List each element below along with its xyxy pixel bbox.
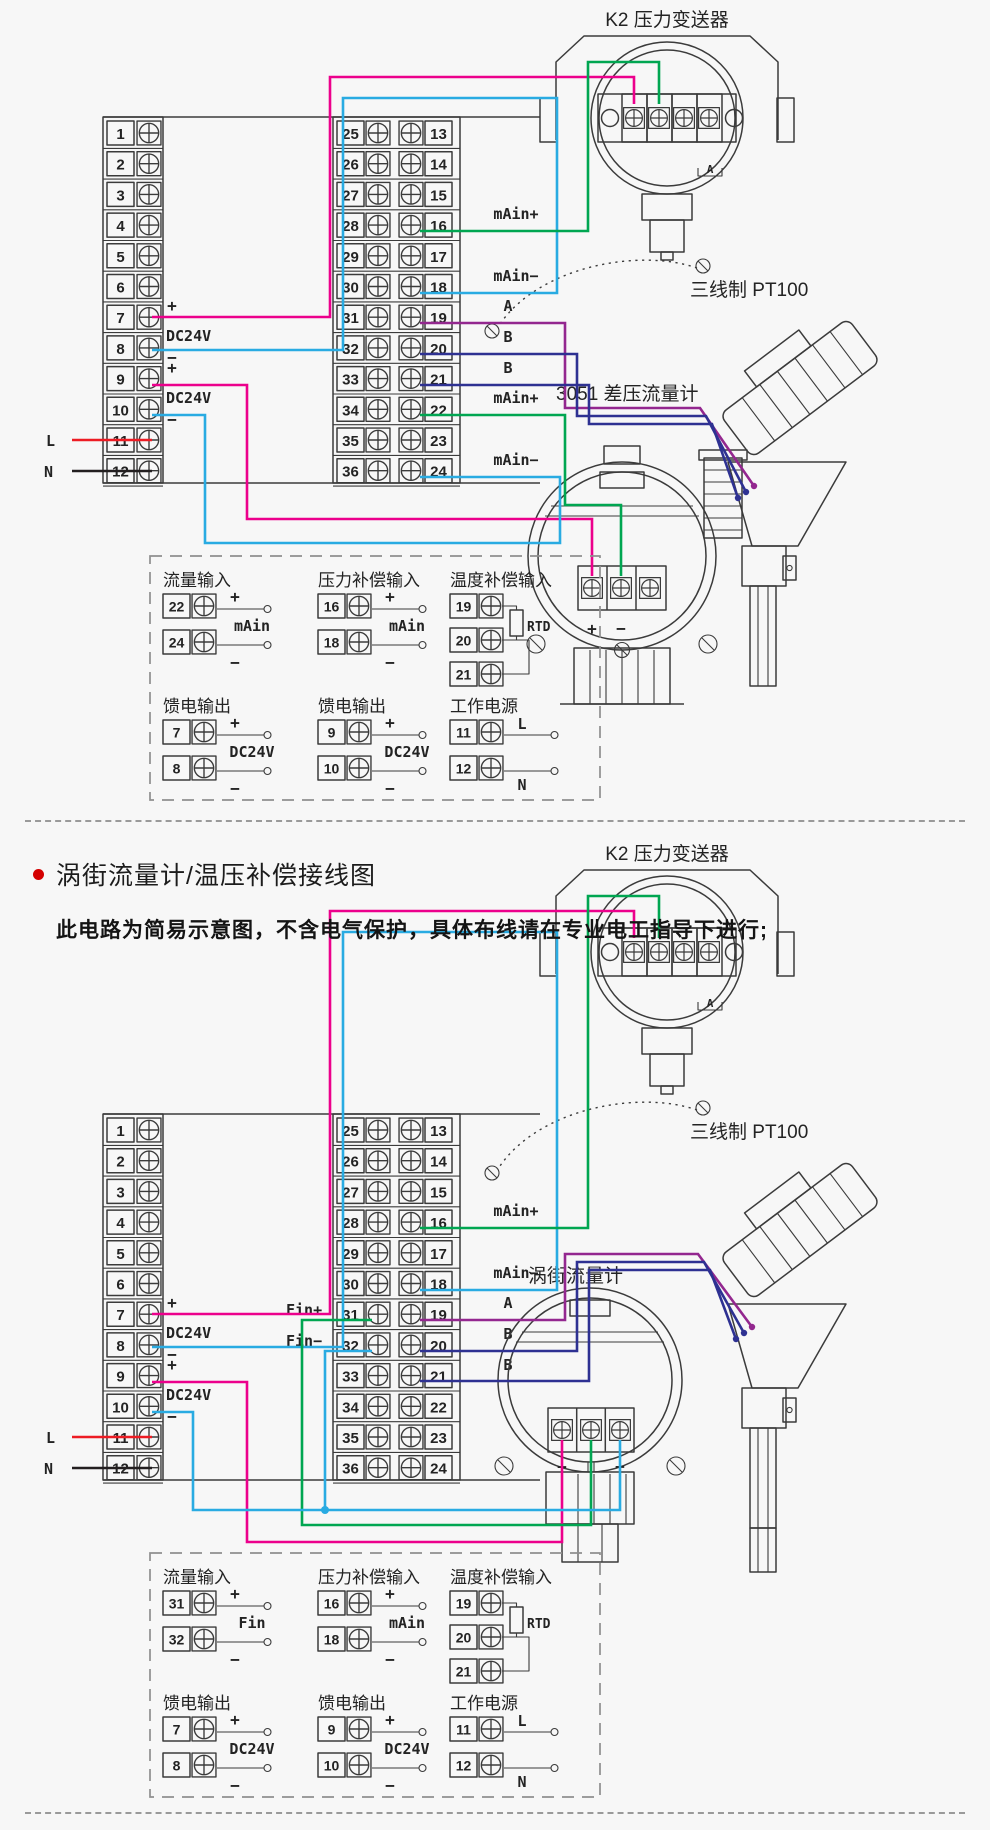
svg-text:30: 30 xyxy=(342,1277,359,1294)
svg-text:−: − xyxy=(167,1407,177,1426)
legend-press-title: 压力补偿输入 xyxy=(318,1568,420,1587)
terminal-row: 2 xyxy=(103,152,163,179)
wires-1 xyxy=(72,62,757,576)
flowmeter-label: 涡街流量计 xyxy=(528,1265,623,1287)
svg-text:25: 25 xyxy=(342,126,359,143)
line-N-label: N xyxy=(44,1460,53,1478)
dc24v1-label: DC24V xyxy=(166,327,211,345)
svg-text:7: 7 xyxy=(116,310,124,327)
pt100-wire-dot xyxy=(743,489,749,495)
svg-text:DC24V: DC24V xyxy=(229,1740,274,1758)
svg-text:+: + xyxy=(385,1584,395,1603)
terminal-row: 18 xyxy=(425,275,452,299)
k2-transmitter-1: K2 压力变送器 A xyxy=(540,9,794,260)
svg-text:+: + xyxy=(385,587,395,606)
svg-text:8: 8 xyxy=(116,1338,124,1355)
k2-transmitter-2: K2 压力变送器 A xyxy=(540,843,794,1094)
label-mAin-minus-18: mAin− xyxy=(493,267,538,285)
svg-text:13: 13 xyxy=(430,126,447,143)
dc24v1-plus: + xyxy=(167,296,177,315)
terminal-row: 15 xyxy=(425,1179,452,1203)
svg-text:33: 33 xyxy=(342,372,359,389)
pt100-label: 三线制 PT100 xyxy=(690,1121,808,1143)
terminal-row: 14 xyxy=(425,152,452,176)
svg-text:26: 26 xyxy=(342,1154,359,1171)
svg-text:+: + xyxy=(230,587,240,606)
svg-text:8: 8 xyxy=(173,1758,181,1774)
svg-text:+: + xyxy=(385,713,395,732)
dc24v2-label: DC24V xyxy=(166,389,211,407)
legend-temp-title: 温度补偿输入 xyxy=(450,571,552,590)
svg-text:30: 30 xyxy=(342,280,359,297)
svg-text:1: 1 xyxy=(116,126,124,143)
svg-text:3: 3 xyxy=(116,187,124,204)
k2-label: K2 压力变送器 xyxy=(605,9,729,31)
terminal-row: 21 xyxy=(425,367,452,391)
svg-text:mAin: mAin xyxy=(389,617,425,635)
svg-text:34: 34 xyxy=(342,1399,359,1416)
rtd-resistor xyxy=(510,610,523,636)
terminal-row: 13 xyxy=(425,1118,452,1142)
label-A-19: A xyxy=(503,297,512,315)
wire-16-to-k2-minus xyxy=(420,62,659,231)
svg-text:20: 20 xyxy=(430,341,447,358)
svg-text:3: 3 xyxy=(116,1184,124,1201)
svg-text:18: 18 xyxy=(324,635,340,651)
label-Fin-plus-31: Fin+ xyxy=(286,1301,322,1319)
svg-text:9: 9 xyxy=(328,1722,336,1738)
svg-text:20: 20 xyxy=(456,633,472,649)
terminal-row: 2 xyxy=(103,1149,163,1176)
svg-text:−: − xyxy=(385,1776,395,1795)
svg-text:A: A xyxy=(707,997,714,1010)
pt100-wire-dot xyxy=(751,483,757,489)
svg-text:8: 8 xyxy=(173,761,181,777)
left-terminal-block-1: 1 2 3 4 5 xyxy=(103,121,163,486)
pt100-probe-2: 三线制 PT100 xyxy=(485,1101,880,1572)
terminal-row: 1 xyxy=(103,1118,163,1145)
svg-text:7: 7 xyxy=(173,725,181,741)
rear-panel-1: 1 2 3 4 5 xyxy=(44,117,540,486)
svg-text:32: 32 xyxy=(342,1338,359,1355)
legend-flow-title: 流量输入 xyxy=(163,1568,231,1587)
svg-text:−: − xyxy=(385,1650,395,1669)
svg-text:11: 11 xyxy=(456,1722,471,1738)
terminal-row: 6 xyxy=(103,275,163,302)
svg-text:9: 9 xyxy=(116,372,124,389)
svg-text:1: 1 xyxy=(116,1123,124,1140)
svg-text:N: N xyxy=(517,1773,526,1791)
terminal-row: 19 xyxy=(425,305,452,329)
svg-text:29: 29 xyxy=(342,249,359,266)
section-title: 涡街流量计/温压补偿接线图 xyxy=(56,856,376,892)
svg-text:11: 11 xyxy=(456,725,471,741)
wires-2 xyxy=(72,896,755,1542)
rtd-label: RTD xyxy=(527,620,551,635)
svg-text:8: 8 xyxy=(116,341,124,358)
svg-text:L: L xyxy=(517,1712,526,1730)
label-mAin-plus-16: mAin+ xyxy=(493,205,538,223)
svg-text:25: 25 xyxy=(342,1123,359,1140)
line-L-label: L xyxy=(46,432,55,450)
wire-9-to-meter-plus xyxy=(152,385,592,576)
terminal-row: 3 xyxy=(103,1179,163,1206)
svg-text:17: 17 xyxy=(430,249,447,266)
label-mAin-plus-16: mAin+ xyxy=(493,1202,538,1220)
legend-feed1-title: 馈电输出 xyxy=(163,697,231,716)
label-B-21: B xyxy=(503,359,512,377)
svg-text:−: − xyxy=(230,1776,240,1795)
terminal-row: 21 xyxy=(425,1364,452,1388)
legend-feed1-title: 馈电输出 xyxy=(163,1694,231,1713)
terminal-row: 11 xyxy=(103,1425,163,1452)
svg-text:16: 16 xyxy=(324,1596,340,1612)
svg-text:12: 12 xyxy=(456,761,472,777)
svg-text:2: 2 xyxy=(116,1154,124,1171)
legend-temp-terminals: 19 20 21 xyxy=(450,594,503,686)
svg-text:+: + xyxy=(230,713,240,732)
svg-text:33: 33 xyxy=(342,1369,359,1386)
svg-text:2: 2 xyxy=(116,157,124,174)
rear-panel-2: 1 2 3 4 5 xyxy=(44,1114,540,1483)
label-A-19: A xyxy=(503,1294,512,1312)
svg-text:22: 22 xyxy=(430,1399,447,1416)
svg-text:mAin: mAin xyxy=(389,1614,425,1632)
terminal-row: 9 xyxy=(103,367,163,394)
svg-text:14: 14 xyxy=(430,1154,447,1171)
legend-press-title: 压力补偿输入 xyxy=(318,571,420,590)
svg-text:16: 16 xyxy=(324,599,340,615)
svg-text:12: 12 xyxy=(456,1758,472,1774)
svg-text:+: + xyxy=(167,1293,177,1312)
terminal-row: 16 xyxy=(425,1210,452,1234)
svg-text:23: 23 xyxy=(430,433,447,450)
terminal-row: 6 xyxy=(103,1272,163,1299)
k2-bracket-letter: A xyxy=(707,163,714,176)
dc24v2-plus: + xyxy=(167,358,177,377)
terminal-row: 12 xyxy=(103,1456,163,1483)
terminal-row: 5 xyxy=(103,1241,163,1268)
svg-text:6: 6 xyxy=(116,280,124,297)
svg-text:6: 6 xyxy=(116,1277,124,1294)
svg-text:19: 19 xyxy=(456,599,472,615)
label-B-20: B xyxy=(503,328,512,346)
svg-text:15: 15 xyxy=(430,1184,447,1201)
pt100-wire-dot xyxy=(735,495,741,501)
line-N-label: N xyxy=(44,463,53,481)
svg-text:11: 11 xyxy=(113,1430,129,1447)
svg-text:DC24V: DC24V xyxy=(166,1386,211,1404)
svg-text:19: 19 xyxy=(456,1596,472,1612)
svg-text:−: − xyxy=(385,653,395,672)
terminal-row: 7 xyxy=(103,1302,163,1329)
svg-text:16: 16 xyxy=(430,218,447,235)
label-mAin-minus-24: mAin− xyxy=(493,451,538,469)
k2-label: K2 压力变送器 xyxy=(605,843,729,865)
svg-text:20: 20 xyxy=(430,1338,447,1355)
svg-text:13: 13 xyxy=(430,1123,447,1140)
terminal-row: 10 xyxy=(103,397,163,424)
rtd-label: RTD xyxy=(527,1617,551,1632)
svg-text:22: 22 xyxy=(430,402,447,419)
terminal-row: 1 xyxy=(103,121,163,148)
terminal-row: 19 xyxy=(425,1302,452,1326)
wiring-diagram-vortex: 1 2 3 4 5 xyxy=(0,830,990,1830)
terminal-row: 15 xyxy=(425,182,452,206)
svg-text:21: 21 xyxy=(430,1369,447,1386)
svg-text:18: 18 xyxy=(324,1632,340,1648)
terminal-row: 9 xyxy=(103,1364,163,1391)
svg-text:mAin: mAin xyxy=(234,617,270,635)
wire-7-to-k2-plus xyxy=(152,911,634,1314)
legend-flow-title: 流量输入 xyxy=(163,571,231,590)
legend-power-title: 工作电源 xyxy=(450,697,518,716)
svg-text:DC24V: DC24V xyxy=(384,1740,429,1758)
svg-text:32: 32 xyxy=(169,1632,185,1648)
svg-text:10: 10 xyxy=(324,1758,340,1774)
svg-text:14: 14 xyxy=(430,157,447,174)
terminal-row: 7 xyxy=(103,305,163,332)
pt100-wire-dot xyxy=(749,1324,755,1330)
svg-text:10: 10 xyxy=(112,1399,129,1416)
svg-text:7: 7 xyxy=(116,1307,124,1324)
svg-text:27: 27 xyxy=(342,187,359,204)
svg-text:+: + xyxy=(167,1355,177,1374)
terminal-row: 20 xyxy=(425,1333,452,1357)
svg-text:21: 21 xyxy=(456,1664,472,1680)
svg-text:11: 11 xyxy=(113,433,129,450)
terminal-row: 14 xyxy=(425,1149,452,1173)
section-subtitle: 此电路为简易示意图，不含电气保护，具体布线请在专业电工指导下进行; xyxy=(56,914,768,944)
svg-text:10: 10 xyxy=(324,761,340,777)
svg-text:32: 32 xyxy=(342,341,359,358)
legend-box-2: 流量输入 31 32 + Fin − 压力补偿输入 16 xyxy=(150,1553,600,1797)
section-divider xyxy=(25,820,965,822)
svg-text:9: 9 xyxy=(328,725,336,741)
terminal-row: 16 xyxy=(425,213,452,237)
svg-text:15: 15 xyxy=(430,187,447,204)
svg-text:28: 28 xyxy=(342,218,359,235)
svg-text:19: 19 xyxy=(430,1307,447,1324)
svg-text:4: 4 xyxy=(116,1215,125,1232)
svg-text:31: 31 xyxy=(342,310,359,327)
bullet-icon xyxy=(33,869,44,880)
wiring-manual-page: { "page": { "bg": "#f7f7f7" }, "colors":… xyxy=(0,0,990,1830)
svg-text:31: 31 xyxy=(169,1596,185,1612)
terminal-row: 24 xyxy=(425,459,452,483)
svg-text:21: 21 xyxy=(456,667,472,683)
terminal-row: 24 xyxy=(425,1456,452,1480)
terminal-row: 17 xyxy=(425,244,452,268)
svg-text:35: 35 xyxy=(342,433,359,450)
svg-text:10: 10 xyxy=(112,402,129,419)
wire-10-to-meter-minus xyxy=(152,1412,620,1510)
terminal-row: 3 xyxy=(103,182,163,209)
legend-feed2-title: 馈电输出 xyxy=(318,697,386,716)
pt100-wire-dot xyxy=(733,1336,739,1342)
flowmeter-minus: − xyxy=(616,619,626,638)
page-bottom-divider xyxy=(25,1812,965,1814)
svg-text:−: − xyxy=(385,779,395,798)
terminal-row: 13 xyxy=(425,121,452,145)
flowmeter-plus: + xyxy=(587,619,597,638)
wiring-diagram-3051: 1 2 3 4 5 xyxy=(0,0,990,822)
svg-text:+: + xyxy=(230,1710,240,1729)
svg-text:34: 34 xyxy=(342,402,359,419)
terminal-row: 18 xyxy=(425,1272,452,1296)
svg-text:17: 17 xyxy=(430,1246,447,1263)
svg-text:−: − xyxy=(230,1650,240,1669)
svg-text:20: 20 xyxy=(456,1630,472,1646)
svg-text:19: 19 xyxy=(430,310,447,327)
terminal-row: 22 xyxy=(425,1394,452,1418)
terminal-row: 17 xyxy=(425,1241,452,1265)
svg-text:29: 29 xyxy=(342,1246,359,1263)
rtd-resistor xyxy=(510,1607,523,1633)
svg-text:N: N xyxy=(517,776,526,794)
left-terminal-block-2: 1 2 3 4 5 xyxy=(103,1118,163,1483)
pt100-label: 三线制 PT100 xyxy=(690,279,808,301)
svg-text:5: 5 xyxy=(116,249,124,266)
svg-text:DC24V: DC24V xyxy=(384,743,429,761)
svg-text:+: + xyxy=(385,1710,395,1729)
svg-text:26: 26 xyxy=(342,157,359,174)
terminal-row: 20 xyxy=(425,336,452,360)
terminal-row: 5 xyxy=(103,244,163,271)
svg-text:L: L xyxy=(517,715,526,733)
svg-text:DC24V: DC24V xyxy=(166,1324,211,1342)
pt100-wire-dot xyxy=(741,1330,747,1336)
svg-text:−: − xyxy=(230,779,240,798)
legend-power-title: 工作电源 xyxy=(450,1694,518,1713)
svg-text:+: + xyxy=(230,1584,240,1603)
legend-feed2-title: 馈电输出 xyxy=(318,1694,386,1713)
wire-7-to-k2-plus xyxy=(152,77,634,317)
terminal-row: 23 xyxy=(425,1425,452,1449)
svg-text:31: 31 xyxy=(342,1307,359,1324)
svg-text:36: 36 xyxy=(342,1461,359,1478)
svg-text:27: 27 xyxy=(342,1184,359,1201)
svg-text:36: 36 xyxy=(342,464,359,481)
svg-text:24: 24 xyxy=(430,1461,447,1478)
terminal-row: 4 xyxy=(103,1210,163,1237)
svg-text:16: 16 xyxy=(430,1215,447,1232)
svg-text:5: 5 xyxy=(116,1246,124,1263)
svg-text:22: 22 xyxy=(169,599,185,615)
svg-text:24: 24 xyxy=(169,635,185,651)
svg-text:9: 9 xyxy=(116,1369,124,1386)
svg-text:−: − xyxy=(230,653,240,672)
dc24v2-minus: − xyxy=(167,410,177,429)
svg-text:35: 35 xyxy=(342,1430,359,1447)
svg-text:Fin: Fin xyxy=(238,1614,265,1632)
wire-junction-dot xyxy=(321,1506,329,1514)
svg-text:4: 4 xyxy=(116,218,125,235)
label-mAin-plus-22: mAin+ xyxy=(493,389,538,407)
terminal-row: 22 xyxy=(425,397,452,421)
terminal-row: 12 xyxy=(103,459,163,486)
legend-power-terminals: 11 12 xyxy=(450,720,558,780)
line-L-label: L xyxy=(46,1429,55,1447)
terminal-row: 11 xyxy=(103,428,163,455)
legend-temp-title: 温度补偿输入 xyxy=(450,1568,552,1587)
svg-text:28: 28 xyxy=(342,1215,359,1232)
legend-box-1: 流量输入 22 24 + mAin − 压力补偿输入 16 xyxy=(150,556,600,800)
svg-text:7: 7 xyxy=(173,1722,181,1738)
svg-text:DC24V: DC24V xyxy=(229,743,274,761)
terminal-row: 10 xyxy=(103,1394,163,1421)
terminal-row: 4 xyxy=(103,213,163,240)
terminal-row: 23 xyxy=(425,428,452,452)
svg-text:23: 23 xyxy=(430,1430,447,1447)
